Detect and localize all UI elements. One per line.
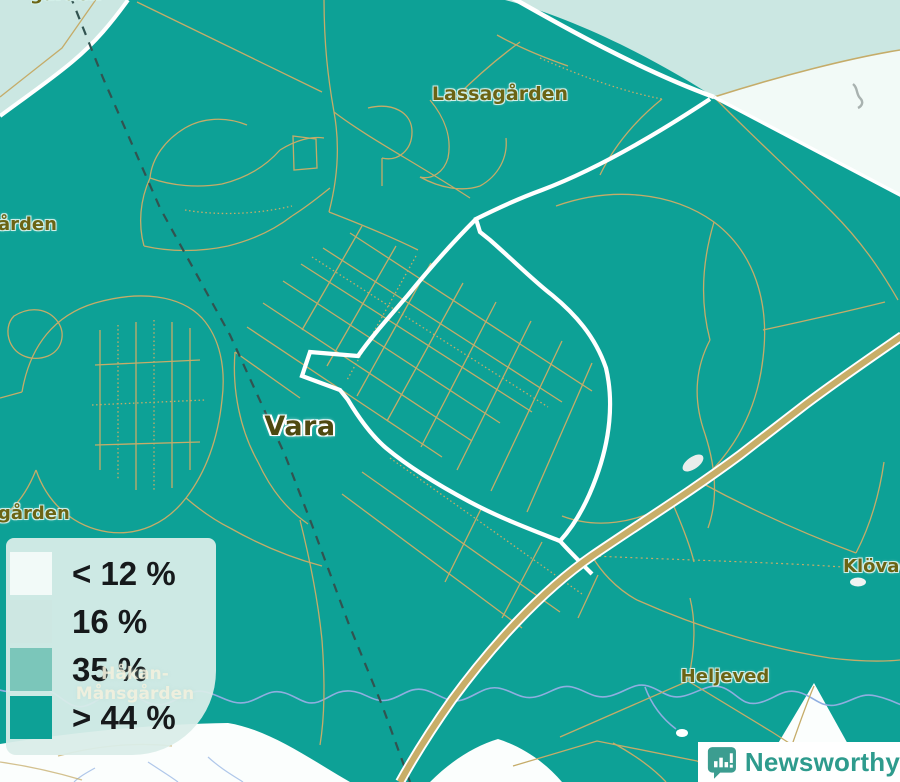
legend-label-2: 16 % <box>72 603 147 641</box>
place-label-west-lower-fragment: gården <box>0 503 70 524</box>
place-label-lassagarden: Lassagården <box>420 83 580 105</box>
legend-label-1: < 12 % <box>72 555 176 593</box>
map-legend: < 12 % 16 % 35 % > 44 % <box>6 538 216 755</box>
newsworthy-logo-icon <box>707 744 737 781</box>
legend-swatch-1 <box>10 552 52 595</box>
place-label-line1: Håkan- <box>40 664 230 684</box>
pond-small <box>676 729 688 737</box>
map-canvas: Lassagården Vara Heljeved Klövagår ården… <box>0 0 900 782</box>
place-label-heljeved: Heljeved <box>655 666 795 687</box>
place-label-vara: Vara <box>240 411 360 442</box>
place-label-line2: Månsgården <box>40 684 230 704</box>
pond-east <box>850 578 866 587</box>
newsworthy-brand-text: Newsworthy <box>745 747 900 778</box>
place-label-hakan-mansgarden: Håkan- Månsgården <box>40 664 230 704</box>
legend-swatch-2 <box>10 600 52 643</box>
legend-label-4: > 44 % <box>72 699 176 737</box>
place-label-top-fragment: gården <box>30 0 102 5</box>
newsworthy-watermark: Newsworthy <box>698 742 900 782</box>
place-label-klovagarden: Klövagår <box>843 556 900 577</box>
place-label-west-upper-fragment: ården <box>0 214 57 235</box>
